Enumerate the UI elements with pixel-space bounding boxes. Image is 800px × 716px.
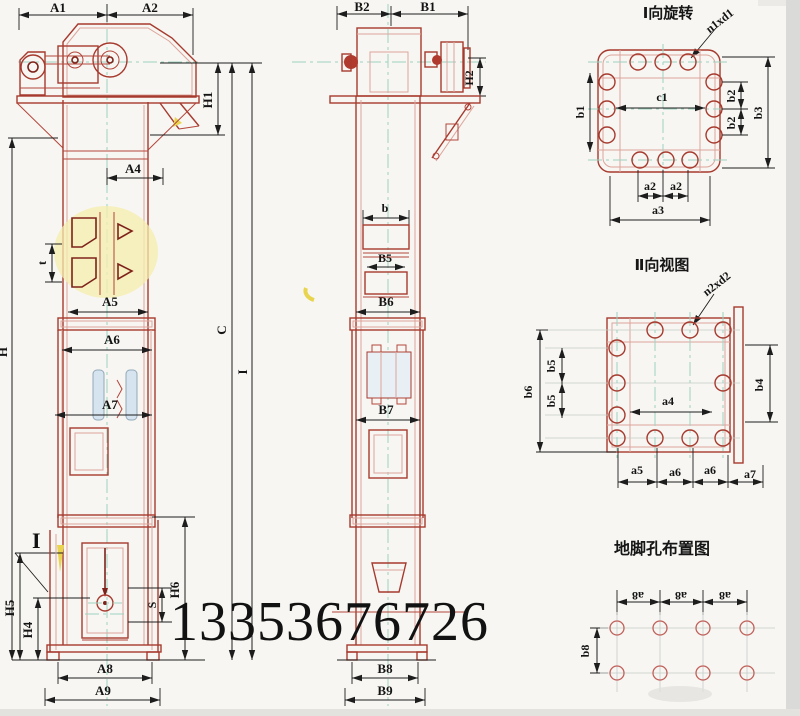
dim-label-A7: A7 <box>102 397 118 412</box>
dim-label-H: H <box>0 347 10 357</box>
dim-label-b4: b4 <box>752 379 766 392</box>
scan-edge-top-right <box>758 0 786 6</box>
dim-label-b2: b2 <box>724 90 738 103</box>
dim-label-A6: A6 <box>104 332 120 347</box>
highlight-ellipse <box>54 206 158 298</box>
dim-label-a4: a4 <box>662 394 674 408</box>
dim-label-A9: A9 <box>95 683 111 698</box>
dim-label-B2: B2 <box>354 0 369 14</box>
dim-label-A1: A1 <box>50 0 66 15</box>
dim-label-c1: c1 <box>656 90 667 104</box>
leader-label-n2xd2: n2xd2 <box>700 269 733 299</box>
leader-label-n1xd1: n1xd1 <box>703 6 736 36</box>
scan-smudge <box>648 686 712 702</box>
scan-edge-right <box>786 0 800 716</box>
dim-label-t: t <box>35 261 49 265</box>
machine-detail <box>367 352 411 398</box>
view-I-rotated-flange: Ⅰ向旋转 n1xd1 c1 b1 b2 b2 <box>573 4 775 226</box>
dim-label-a8: a8 <box>719 589 731 603</box>
section-marker-I: I <box>32 528 41 553</box>
dim-label-C: C <box>214 325 229 334</box>
dim-label-H4: H4 <box>20 621 35 638</box>
engineering-drawing-canvas: A1 A2 H1 C I <box>0 0 800 716</box>
dim-label-b6: b6 <box>521 386 535 399</box>
dim-label-H5: H5 <box>2 599 17 616</box>
dim-label-B6: B6 <box>378 294 394 309</box>
view-I-title: Ⅰ向旋转 <box>643 4 694 22</box>
dim-label-b2: b2 <box>724 117 738 130</box>
door-detail <box>126 370 137 420</box>
dim-label-a7: a7 <box>744 467 756 481</box>
dim-label-a6: a6 <box>704 463 716 477</box>
dim-label-B1: B1 <box>420 0 435 14</box>
dim-label-a3: a3 <box>652 203 664 217</box>
dim-label-b3: b3 <box>751 107 765 120</box>
dim-label-H1: H1 <box>200 92 215 109</box>
dim-label-A2: A2 <box>142 0 158 15</box>
dim-label-b5: b5 <box>544 360 558 373</box>
dim-label-I: I <box>235 369 250 374</box>
dim-label-S: S <box>145 601 159 608</box>
dim-label-b5: b5 <box>544 395 558 408</box>
scan-edge-bottom <box>0 709 800 716</box>
view-II-flange: Ⅱ向视图 n2xd2 a4 b4 b5 <box>521 256 778 488</box>
dim-label-B9: B9 <box>377 683 393 698</box>
watermark-phone-number: 13353676726 <box>170 591 489 653</box>
door-detail <box>93 370 104 420</box>
dim-label-H2: H2 <box>462 70 476 85</box>
highlight-mark <box>305 288 314 300</box>
dim-label-B7: B7 <box>378 402 394 417</box>
dim-label-A4: A4 <box>125 161 141 176</box>
dim-label-B5: B5 <box>378 251 392 265</box>
view-II-title: Ⅱ向视图 <box>635 256 690 274</box>
dim-label-a8: a8 <box>632 589 644 603</box>
dim-label-A8: A8 <box>97 661 113 676</box>
bucket-elevator-drawing-page: A1 A2 H1 C I <box>0 0 800 716</box>
foundation-hole-layout: 地脚孔布置图 a8 a8 a8 b8 <box>578 539 775 702</box>
dim-label-a2: a2 <box>670 179 682 193</box>
dim-label-b1: b1 <box>573 106 587 119</box>
dim-label-a5: a5 <box>631 463 643 477</box>
dim-label-b: b <box>382 201 389 215</box>
dim-label-a6: a6 <box>669 465 681 479</box>
dim-label-A5: A5 <box>102 294 118 309</box>
dim-label-b8: b8 <box>578 645 592 658</box>
dim-label-B8: B8 <box>377 661 393 676</box>
foundation-view-title: 地脚孔布置图 <box>614 539 710 558</box>
dim-label-a8: a8 <box>675 589 687 603</box>
dim-label-a2: a2 <box>644 179 656 193</box>
